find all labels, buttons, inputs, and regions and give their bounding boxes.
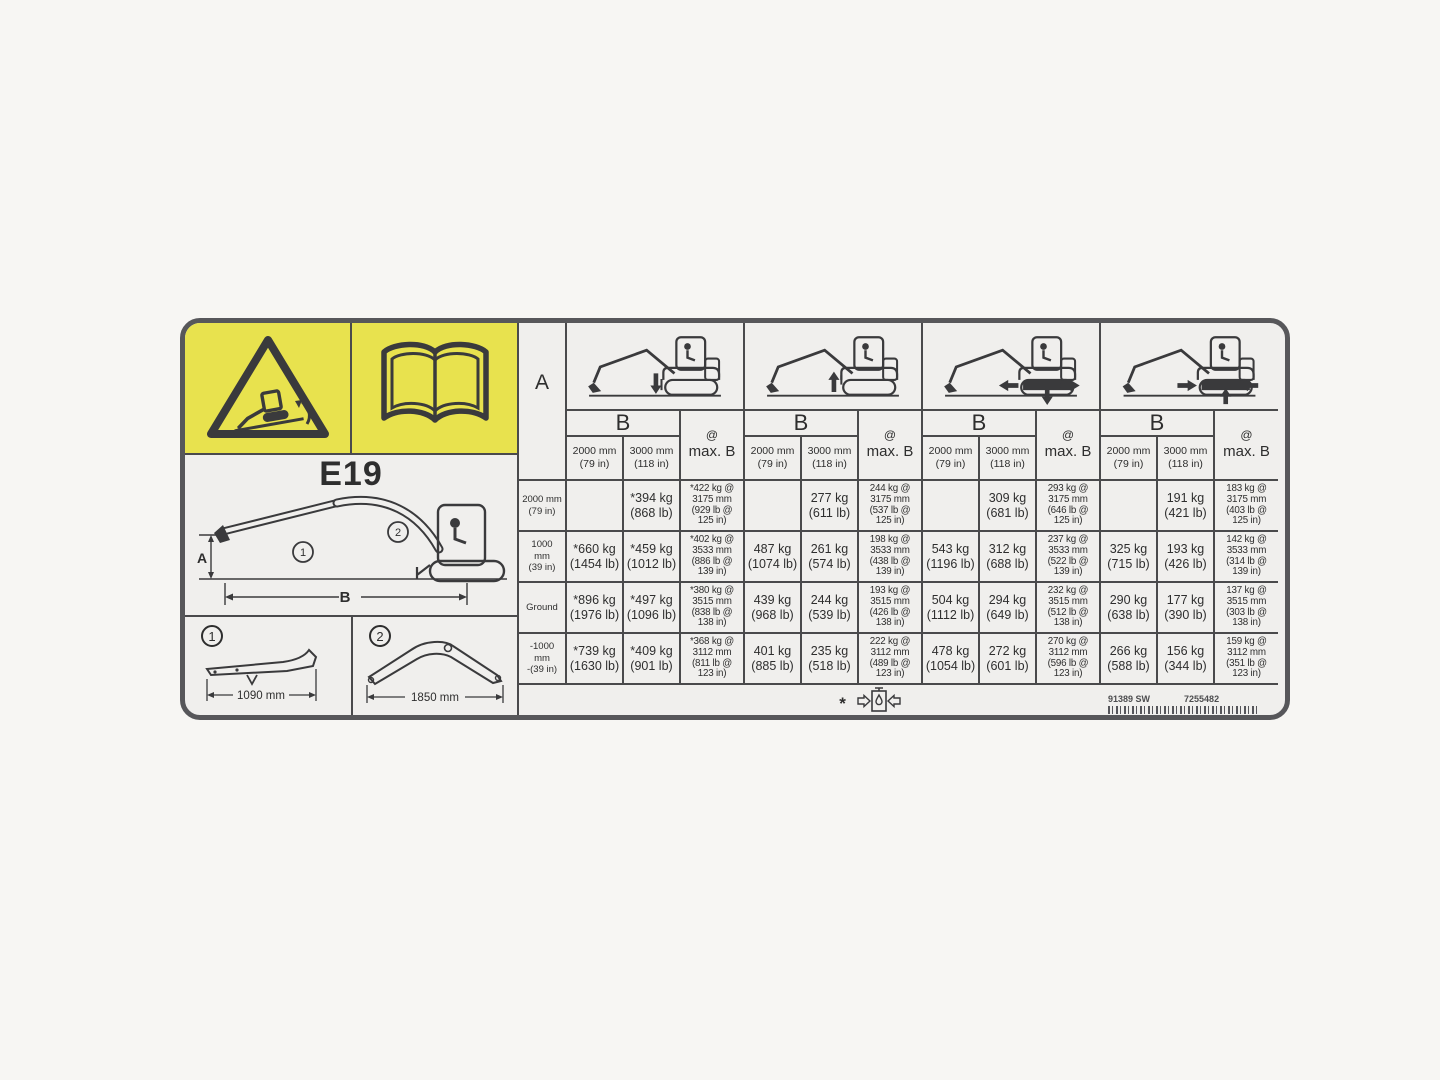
capacity-cell: 191 kg (421 lb) — [1158, 481, 1215, 532]
barcode — [1108, 706, 1260, 714]
b-span-header: B — [923, 411, 1037, 437]
hydraulic-limit-icon — [856, 687, 902, 713]
excavator-blade-up-icon — [747, 327, 919, 405]
capacity-cell: *394 kg (868 lb) — [624, 481, 681, 532]
max-b-label: max. B — [1045, 443, 1092, 462]
b-distance-header: 3000 mm (118 in) — [802, 437, 859, 481]
capacity-cell: 270 kg @ 3112 mm (596 lb @ 123 in) — [1037, 634, 1101, 685]
b-distance-header: 2000 mm (79 in) — [567, 437, 624, 481]
lift-configuration-2 — [745, 323, 923, 411]
at-symbol: @ — [1240, 428, 1252, 443]
capacity-cell: 478 kg (1054 lb) — [923, 634, 980, 685]
capacity-cell: 235 kg (518 lb) — [802, 634, 859, 685]
lift-configuration-3 — [923, 323, 1101, 411]
capacity-cell: 293 kg @ 3175 mm (646 lb @ 125 in) — [1037, 481, 1101, 532]
capacity-cell: 401 kg (885 lb) — [745, 634, 802, 685]
left-pane: 1 2 A B E19 1 — [185, 323, 519, 715]
capacity-cell: 244 kg @ 3175 mm (537 lb @ 125 in) — [859, 481, 923, 532]
excavator-tracks-retracted-icon — [1103, 327, 1276, 405]
capacity-cell: 309 kg (681 lb) — [980, 481, 1037, 532]
b-distance-header: 2000 mm (79 in) — [923, 437, 980, 481]
lift-capacity-table: A — [519, 323, 1285, 715]
capacity-cell: *896 kg (1976 lb) — [567, 583, 624, 634]
b-distance-header: 2000 mm (79 in) — [745, 437, 802, 481]
capacity-cell: 325 kg (715 lb) — [1101, 532, 1158, 583]
max-b-header: @ max. B — [681, 411, 745, 481]
max-b-label: max. B — [689, 443, 736, 462]
model-panel: 1 2 A B E19 — [185, 455, 517, 617]
capacity-cell — [1101, 481, 1158, 532]
height-row-header: 2000 mm (79 in) — [519, 481, 567, 532]
screenshot-stage: { "decal": { "model": "E19", "colors": {… — [0, 0, 1440, 1080]
height-row-header: Ground — [519, 583, 567, 634]
b-distance-header: 2000 mm (79 in) — [1101, 437, 1158, 481]
arm-option-panel-2: 2 1850 mm — [353, 617, 519, 718]
capacity-cell: 439 kg (968 lb) — [745, 583, 802, 634]
dimension-b-label: B — [340, 589, 351, 606]
b-span-header: B — [745, 411, 859, 437]
capacity-cell: 487 kg (1074 lb) — [745, 532, 802, 583]
height-row-header: 1000 mm (39 in) — [519, 532, 567, 583]
capacity-cell: 159 kg @ 3112 mm (351 lb @ 123 in) — [1215, 634, 1278, 685]
at-symbol: @ — [1062, 428, 1074, 443]
capacity-cell: *368 kg @ 3112 mm (811 lb @ 123 in) — [681, 634, 745, 685]
capacity-cell: 312 kg (688 lb) — [980, 532, 1037, 583]
capacity-cell: 177 kg (390 lb) — [1158, 583, 1215, 634]
capacity-cell: 237 kg @ 3533 mm (522 lb @ 139 in) — [1037, 532, 1101, 583]
max-b-label: max. B — [1223, 443, 1270, 462]
at-symbol: @ — [884, 428, 896, 443]
max-b-header: @ max. B — [1215, 411, 1278, 481]
capacity-cell: 156 kg (344 lb) — [1158, 634, 1215, 685]
b-distance-header: 3000 mm (118 in) — [624, 437, 681, 481]
height-row-header: -1000 mm -(39 in) — [519, 634, 567, 685]
capacity-cell: 261 kg (574 lb) — [802, 532, 859, 583]
capacity-cell: 543 kg (1196 lb) — [923, 532, 980, 583]
operators-manual-icon — [372, 336, 498, 440]
capacity-cell: 504 kg (1112 lb) — [923, 583, 980, 634]
capacity-cell: *739 kg (1630 lb) — [567, 634, 624, 685]
capacity-cell: 198 kg @ 3533 mm (438 lb @ 139 in) — [859, 532, 923, 583]
capacity-cell: 272 kg (601 lb) — [980, 634, 1037, 685]
warning-row — [185, 323, 517, 455]
lift-configuration-4 — [1101, 323, 1278, 411]
arm-options-row: 1 1090 mm 2 — [185, 617, 517, 718]
arm-length-dimension: 1090 mm — [237, 690, 285, 702]
model-label: E19 — [319, 455, 383, 494]
arm-length-dimension: 1850 mm — [411, 692, 459, 704]
column-a-header: A — [519, 323, 567, 481]
capacity-cell: 142 kg @ 3533 mm (314 lb @ 139 in) — [1215, 532, 1278, 583]
capacity-cell — [923, 481, 980, 532]
capacity-cell: 137 kg @ 3515 mm (303 lb @ 138 in) — [1215, 583, 1278, 634]
capacity-cell: 222 kg @ 3112 mm (489 lb @ 123 in) — [859, 634, 923, 685]
capacity-cell — [567, 481, 624, 532]
part-number-block: 91389 SW 7255482 — [1108, 695, 1260, 714]
capacity-cell: 244 kg (539 lb) — [802, 583, 859, 634]
capacity-cell: 232 kg @ 3515 mm (512 lb @ 138 in) — [1037, 583, 1101, 634]
capacity-cell: 193 kg (426 lb) — [1158, 532, 1215, 583]
part-number: 91389 SW — [1108, 695, 1150, 705]
capacity-cell: *422 kg @ 3175 mm (929 lb @ 125 in) — [681, 481, 745, 532]
diagram-marker-1: 1 — [300, 547, 306, 559]
marker-badge: 2 — [369, 625, 391, 647]
diagram-marker-2: 2 — [395, 527, 401, 539]
dimension-a-label: A — [197, 550, 207, 566]
table-footnote: * — [839, 687, 902, 713]
capacity-cell: 193 kg @ 3515 mm (426 lb @ 138 in) — [859, 583, 923, 634]
capacity-cell: *409 kg (901 lb) — [624, 634, 681, 685]
part-number: 7255482 — [1184, 695, 1219, 705]
capacity-cell: 294 kg (649 lb) — [980, 583, 1037, 634]
arm-option-panel-1: 1 1090 mm — [185, 617, 353, 718]
capacity-cell: *497 kg (1096 lb) — [624, 583, 681, 634]
capacity-cell: *402 kg @ 3533 mm (886 lb @ 139 in) — [681, 532, 745, 583]
manual-panel — [352, 323, 517, 453]
tipping-warning-icon — [203, 332, 333, 444]
capacity-cell: *660 kg (1454 lb) — [567, 532, 624, 583]
max-b-label: max. B — [867, 443, 914, 462]
b-distance-header: 3000 mm (118 in) — [1158, 437, 1215, 481]
table-footer: * 91389 SW 7255482 — [519, 685, 1278, 715]
excavator-blade-down-icon — [569, 327, 741, 405]
asterisk: * — [839, 689, 846, 712]
max-b-header: @ max. B — [1037, 411, 1101, 481]
b-distance-header: 3000 mm (118 in) — [980, 437, 1037, 481]
capacity-cell: *459 kg (1012 lb) — [624, 532, 681, 583]
lift-capacity-decal: 1 2 A B E19 1 — [180, 318, 1290, 720]
excavator-tracks-extended-icon — [925, 327, 1097, 405]
warning-panel — [185, 323, 352, 453]
at-symbol: @ — [706, 428, 718, 443]
capacity-cell: 183 kg @ 3175 mm (403 lb @ 125 in) — [1215, 481, 1278, 532]
capacity-cell: 266 kg (588 lb) — [1101, 634, 1158, 685]
capacity-cell: 277 kg (611 lb) — [802, 481, 859, 532]
marker-badge: 1 — [201, 625, 223, 647]
b-span-header: B — [567, 411, 681, 437]
capacity-cell — [745, 481, 802, 532]
max-b-header: @ max. B — [859, 411, 923, 481]
lift-configuration-1 — [567, 323, 745, 411]
capacity-cell: *380 kg @ 3515 mm (838 lb @ 138 in) — [681, 583, 745, 634]
b-span-header: B — [1101, 411, 1215, 437]
capacity-cell: 290 kg (638 lb) — [1101, 583, 1158, 634]
